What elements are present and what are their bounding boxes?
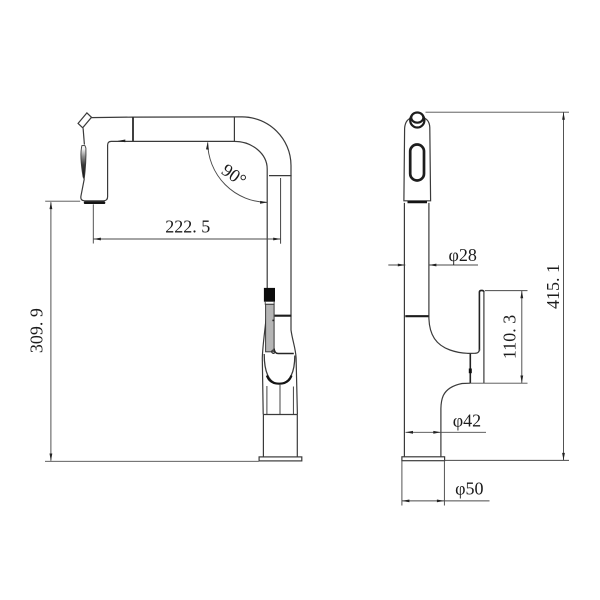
svg-text:90°: 90°	[218, 160, 250, 191]
svg-text:φ28: φ28	[449, 245, 477, 265]
svg-text:309. 9: 309. 9	[27, 308, 47, 353]
svg-text:222. 5: 222. 5	[165, 216, 210, 236]
svg-text:φ42: φ42	[453, 411, 481, 431]
svg-text:415. 1: 415. 1	[543, 264, 563, 309]
svg-text:110. 3: 110. 3	[500, 315, 520, 359]
svg-text:φ50: φ50	[455, 479, 483, 499]
